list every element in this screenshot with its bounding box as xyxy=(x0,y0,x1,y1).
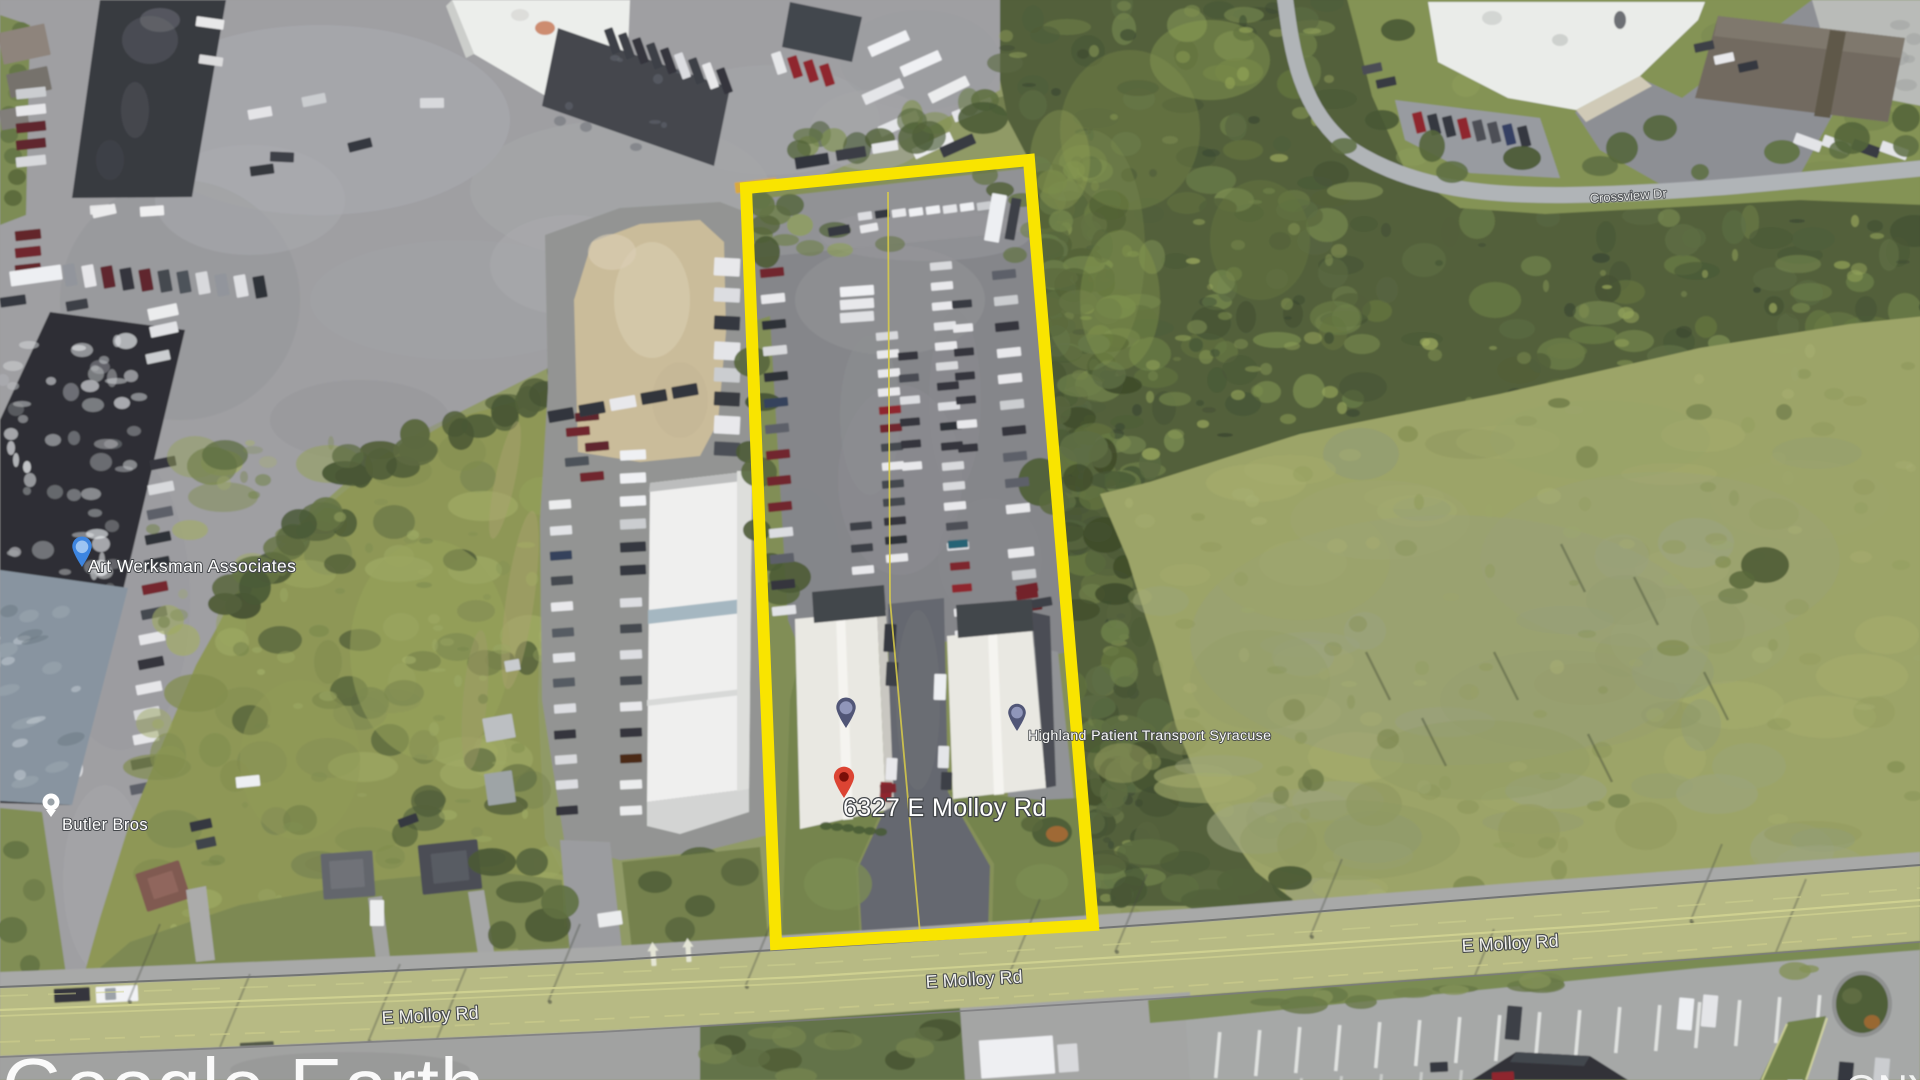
svg-text:Art Werksman Associates: Art Werksman Associates xyxy=(88,556,296,576)
svg-text:Google Earth: Google Earth xyxy=(2,1042,485,1080)
svg-text:Highland Patient Transport Syr: Highland Patient Transport Syracuse xyxy=(1028,728,1271,744)
svg-text:6327 E Molloy Rd: 6327 E Molloy Rd xyxy=(843,794,1047,822)
svg-text:Butler Bros: Butler Bros xyxy=(62,816,148,834)
svg-text:ONYX: ONYX xyxy=(1845,1066,1920,1080)
